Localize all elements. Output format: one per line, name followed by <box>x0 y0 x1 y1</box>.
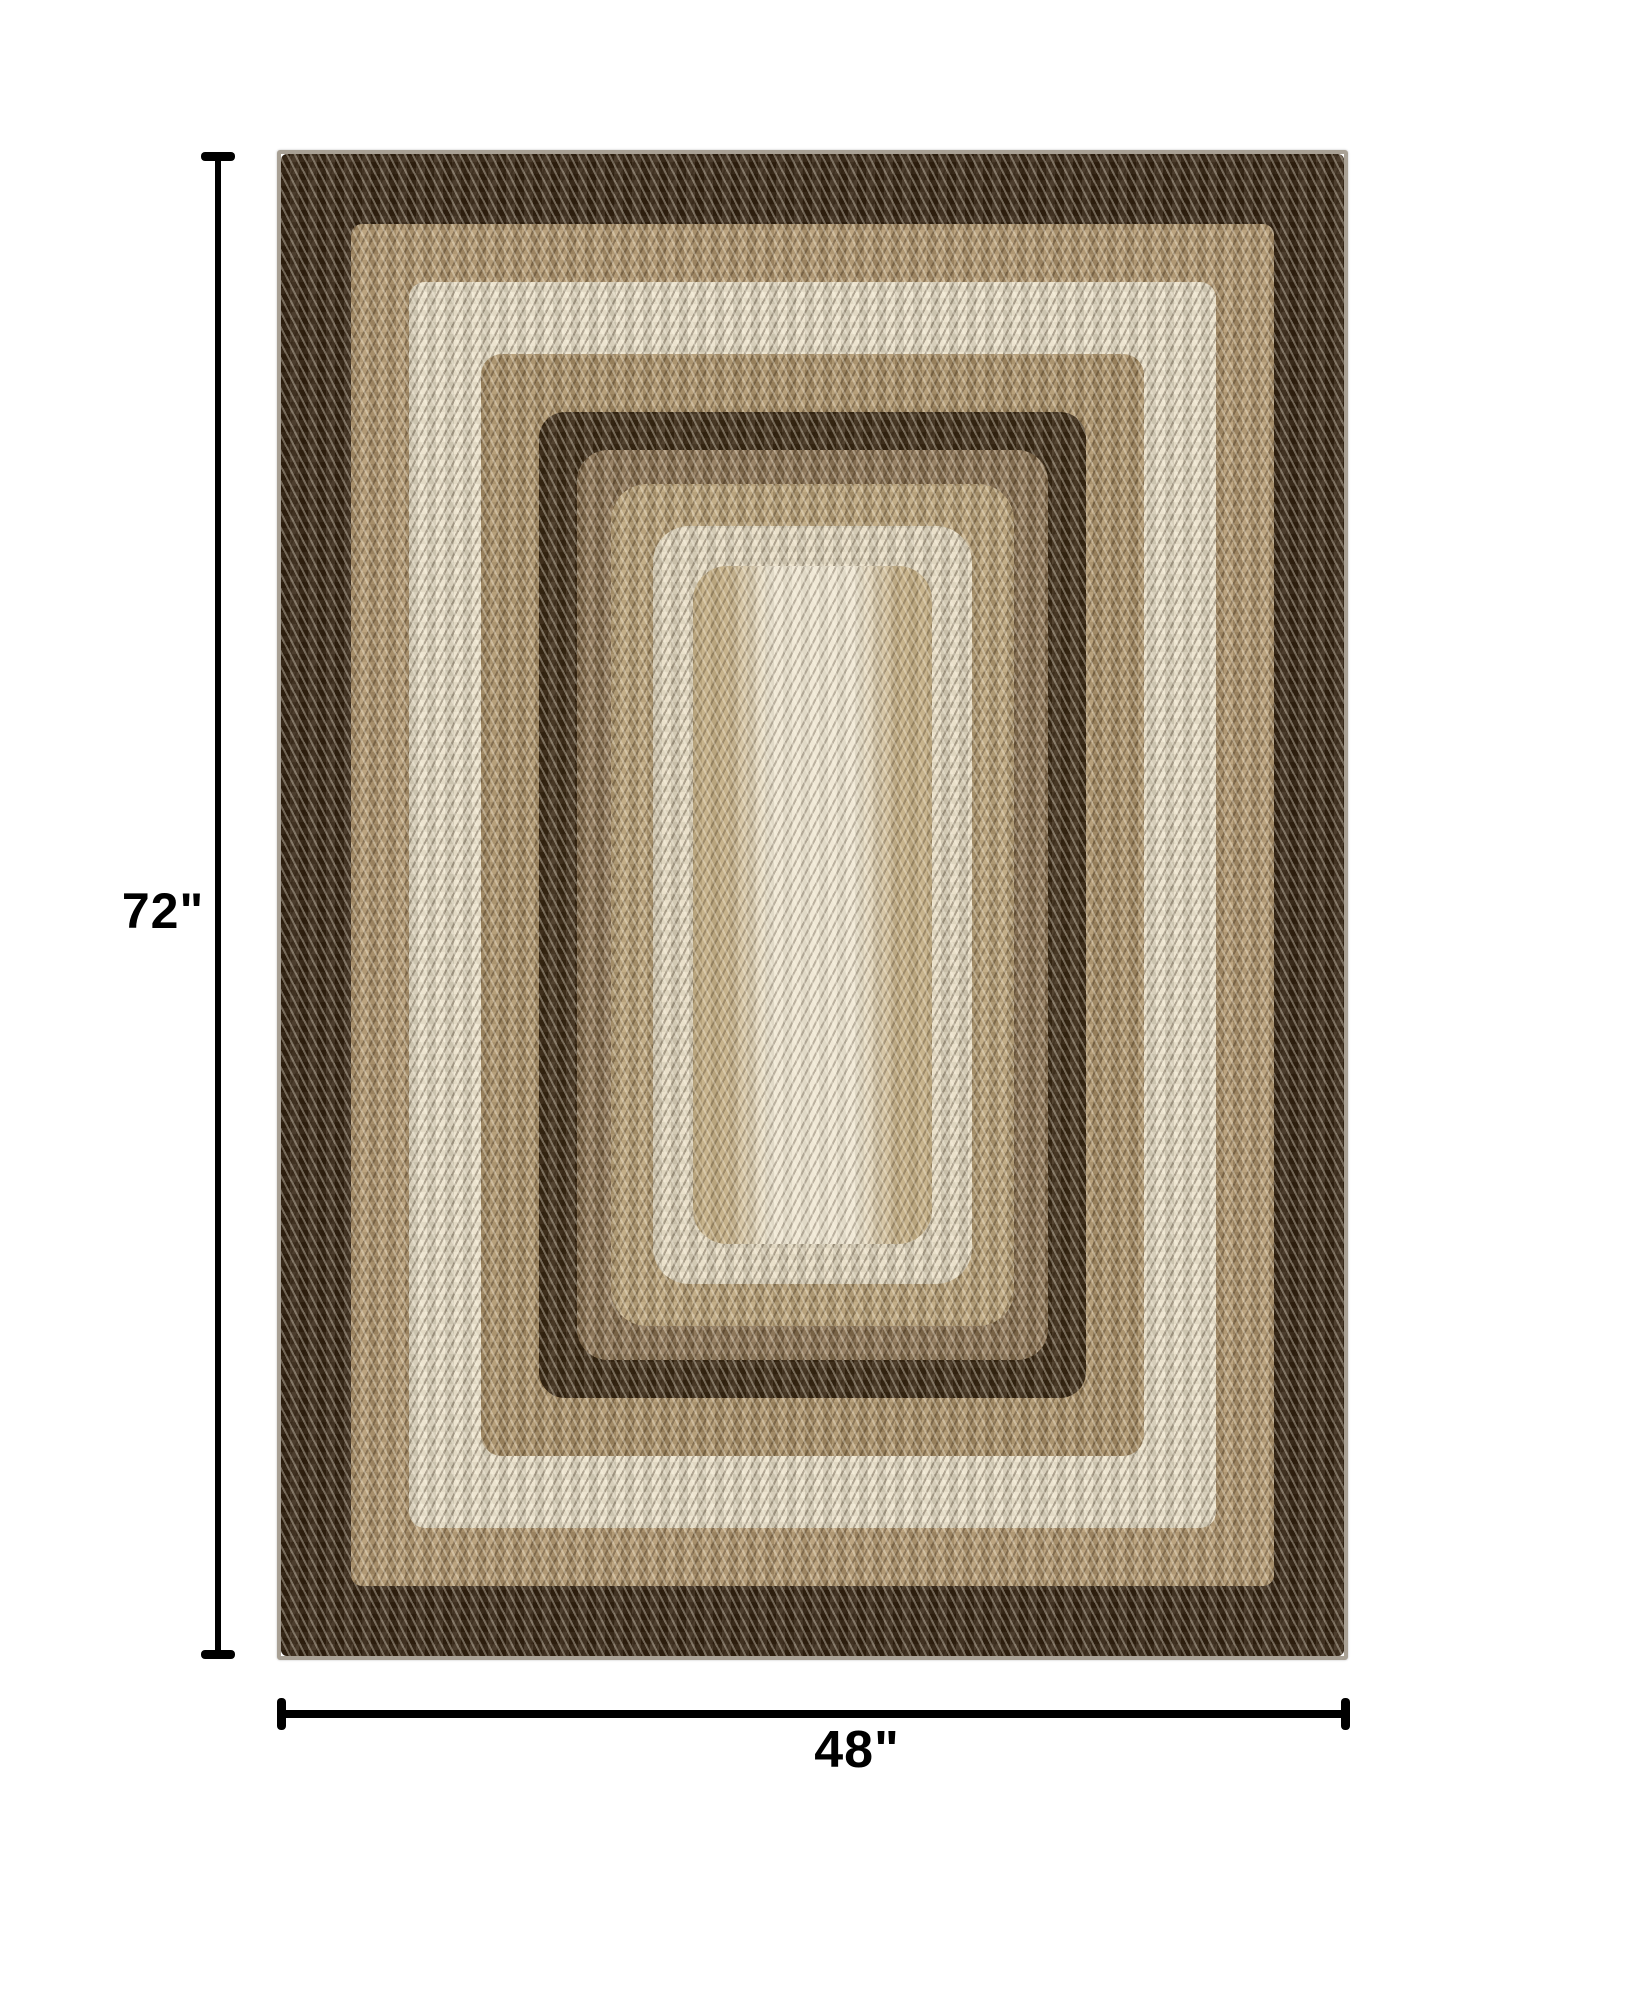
rug-band-tan-band-3 <box>611 484 1014 1326</box>
rug-band-outer-dark-band <box>281 154 1344 1656</box>
product-dimension-image: 72" 48" <box>0 0 1626 2007</box>
rug-band-tan-band-1 <box>351 224 1274 1586</box>
width-dimension-cap-left <box>277 1698 286 1730</box>
width-dimension-cap-right <box>1341 1698 1350 1730</box>
height-dimension-label: 72" <box>88 884 238 939</box>
rug-photo <box>277 150 1348 1660</box>
rug-center <box>693 566 932 1244</box>
height-dimension-cap-bottom <box>201 1650 235 1659</box>
rug-band-inner-dark-ring <box>539 412 1086 1398</box>
width-dimension-label: 48" <box>782 1722 932 1779</box>
height-dimension-cap-top <box>201 152 235 161</box>
rug-band-cream-ring-inner <box>653 526 972 1284</box>
rug-band-brown-mottled-band <box>577 450 1048 1360</box>
rug-band-tan-band-2 <box>481 354 1144 1456</box>
rug-band-cream-ring-outer <box>409 282 1216 1528</box>
width-dimension-line <box>277 1710 1350 1718</box>
